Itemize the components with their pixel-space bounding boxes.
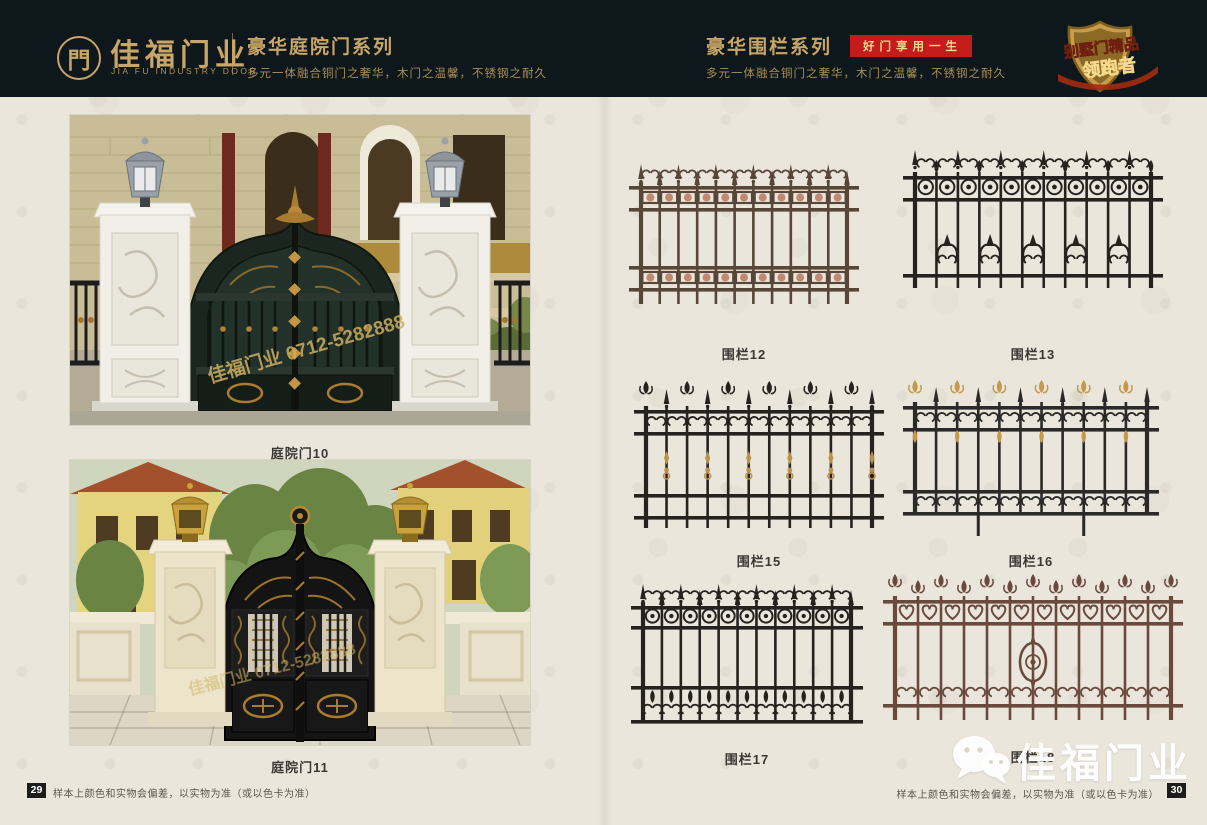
slogan-badge: 好门享用一生 xyxy=(850,35,972,57)
page-number-left: 29 xyxy=(27,783,46,798)
header-divider xyxy=(232,33,233,75)
fence-image-18 xyxy=(882,570,1184,746)
series-left-subtitle: 多元一体融合铜门之奢华，木门之温馨，不锈钢之耐久 xyxy=(247,65,547,81)
fence-image-15 xyxy=(633,376,885,548)
series-left-title: 豪华庭院门系列 xyxy=(247,32,394,59)
shield-emblem-icon: 别墅门精品 领跑者 xyxy=(1042,18,1172,100)
fence-image-16 xyxy=(902,376,1160,548)
product-caption: 围栏15 xyxy=(633,551,885,570)
logo-glyph: 門 xyxy=(68,41,91,75)
fence-image-13 xyxy=(902,146,1164,342)
wechat-icon xyxy=(950,733,1012,787)
photo-courtyard-gate-11: 佳福门业 0712-5282888 xyxy=(70,460,530,745)
series-right-title: 豪华围栏系列 xyxy=(706,32,832,59)
photo-courtyard-gate-10: 佳福门业 0712-5282888 xyxy=(70,115,530,425)
product-caption: 围栏13 xyxy=(902,344,1164,363)
fence-image-17 xyxy=(630,578,864,748)
product-caption: 围栏12 xyxy=(628,344,860,363)
series-left: 豪华庭院门系列 多元一体融合铜门之奢华，木门之温馨，不锈钢之耐久 xyxy=(247,32,547,81)
footer-note-left: 样本上颜色和实物会偏差，以实物为准（或以色卡为准） xyxy=(53,785,316,800)
catalog-spread: 門 佳福门业 JIA FU INDUSTRY DOOR 豪华庭院门系列 多元一体… xyxy=(0,0,1207,825)
fence-image-12 xyxy=(628,158,860,342)
watermark-brand-text: 佳福门业 xyxy=(1016,731,1192,789)
product-caption: 庭院门11 xyxy=(70,757,530,776)
product-caption: 围栏16 xyxy=(902,551,1160,570)
series-right: 豪华围栏系列 好门享用一生 多元一体融合铜门之奢华，木门之温馨，不锈钢之耐久 xyxy=(706,32,1006,81)
brand-logo-icon: 門 xyxy=(57,36,101,80)
series-right-subtitle: 多元一体融合铜门之奢华，木门之温馨，不锈钢之耐久 xyxy=(706,65,1006,81)
wechat-watermark: 佳福门业 xyxy=(950,731,1192,789)
header-bar: 門 佳福门业 JIA FU INDUSTRY DOOR 豪华庭院门系列 多元一体… xyxy=(0,0,1207,97)
product-caption: 围栏17 xyxy=(630,749,864,768)
brand-name-en: JIA FU INDUSTRY DOOR xyxy=(111,66,258,76)
page-fold-shadow xyxy=(597,97,613,825)
